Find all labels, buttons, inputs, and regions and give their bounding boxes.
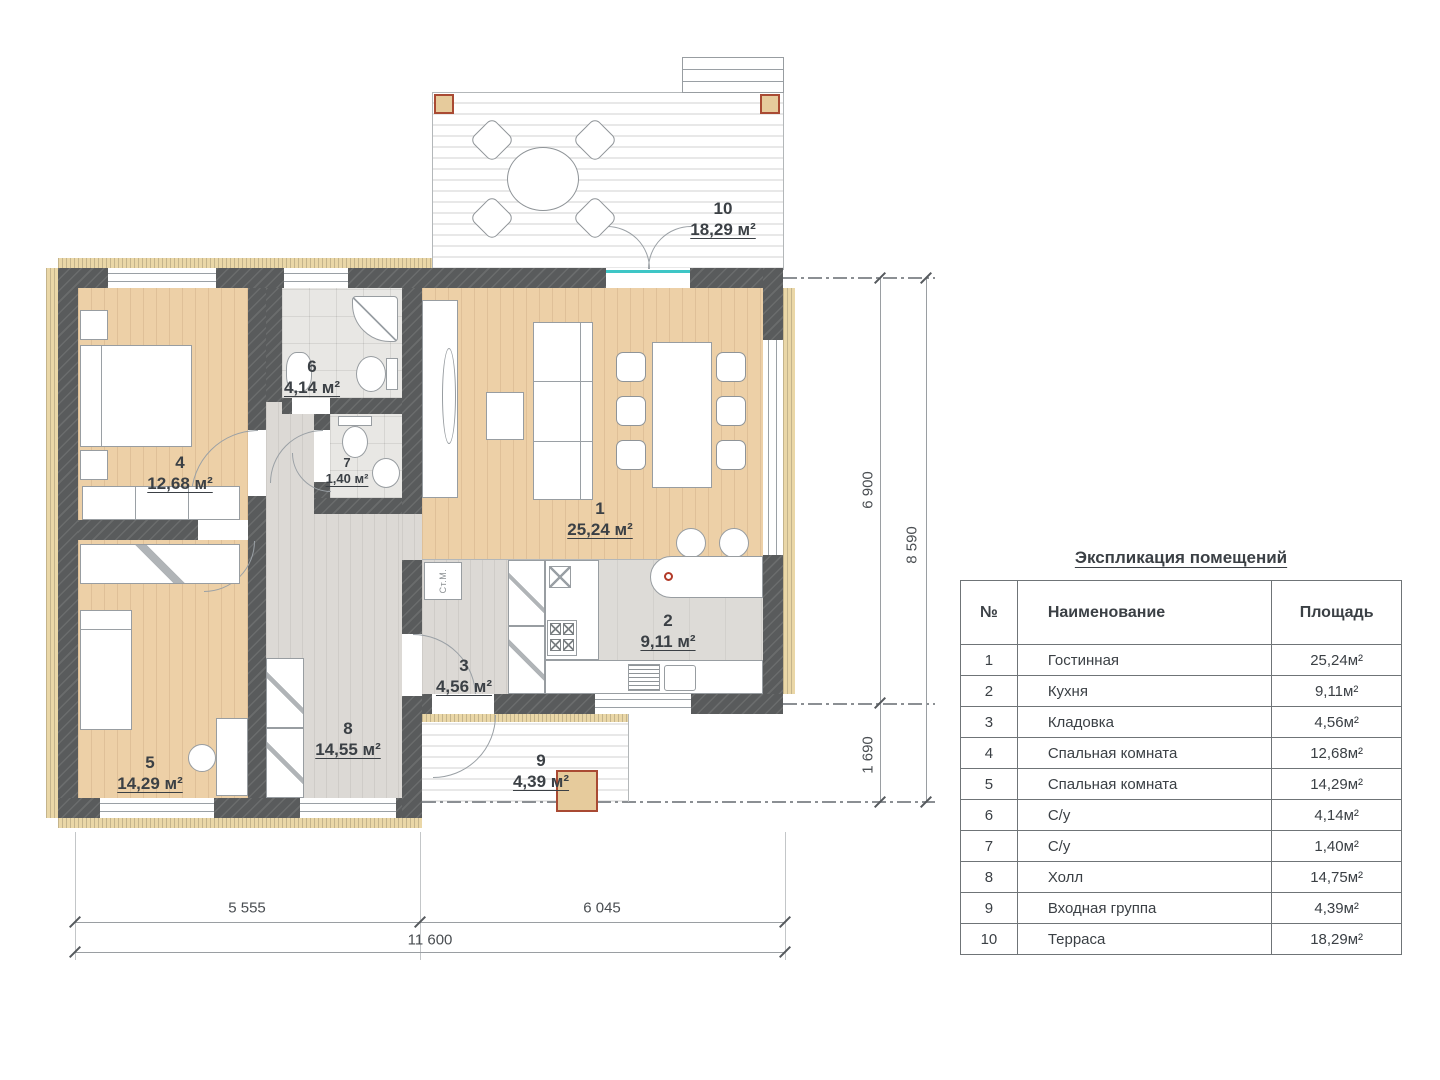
cell-name: Холл <box>1017 862 1271 893</box>
insulation-strip-right <box>783 288 795 694</box>
room-label-7: 7 1,40 м² <box>326 455 369 488</box>
wc-sink <box>372 458 400 488</box>
dishwasher <box>628 664 660 691</box>
room-area: 25,24 м² <box>567 519 633 540</box>
col-header-area: Площадь <box>1272 581 1402 645</box>
nightstand <box>80 450 108 480</box>
toilet-bowl <box>342 426 368 458</box>
room-label-9: 9 4,39 м² <box>513 750 569 793</box>
burner <box>550 623 561 635</box>
door-opening-bathroom <box>292 398 330 414</box>
insulation-strip-left <box>46 268 58 818</box>
cell-area: 25,24м² <box>1272 645 1402 676</box>
hall-wardrobe <box>266 728 304 798</box>
cell-num: 3 <box>961 707 1018 738</box>
insulation-strip-bottom <box>58 818 422 828</box>
terrace-step <box>682 57 784 93</box>
dining-chair <box>716 352 746 382</box>
stove <box>547 620 577 656</box>
toilet-tank <box>338 416 372 426</box>
single-bed <box>80 610 132 730</box>
window-bedroom5 <box>100 798 214 818</box>
room-number: 7 <box>326 455 369 471</box>
dining-chair <box>616 396 646 426</box>
room-number: 8 <box>315 718 381 739</box>
room-label-2: 2 9,11 м² <box>640 610 695 653</box>
cell-name: Спальная комната <box>1017 738 1271 769</box>
storage-closet <box>508 626 545 694</box>
window-hall <box>300 798 396 818</box>
dining-chair <box>616 352 646 382</box>
room-label-3: 3 4,56 м² <box>436 655 492 698</box>
dim-line-right-inner <box>880 278 881 802</box>
col-header-num: № <box>961 581 1018 645</box>
burner <box>563 639 574 651</box>
cell-num: 7 <box>961 831 1018 862</box>
room-number: 3 <box>436 655 492 676</box>
bar-stool <box>719 528 749 558</box>
schedule-row: 10 Терраса 18,29м² <box>961 924 1402 955</box>
porch-edge-line <box>628 714 629 802</box>
wall-left <box>58 268 78 818</box>
room-label-5: 5 14,29 м² <box>117 752 183 795</box>
dim-label-right-total: 8 590 <box>904 526 921 564</box>
room-area: 4,56 м² <box>436 676 492 697</box>
cell-name: С/у <box>1017 800 1271 831</box>
sofa <box>533 322 593 500</box>
wall-center-upper <box>402 288 422 514</box>
schedule-row: 2 Кухня 9,11м² <box>961 676 1402 707</box>
col-header-name: Наименование <box>1017 581 1271 645</box>
cell-area: 4,39м² <box>1272 893 1402 924</box>
nightstand <box>80 310 108 340</box>
schedule-header-row: № Наименование Площадь <box>961 581 1402 645</box>
dim-label-right-lower: 1 690 <box>860 736 877 774</box>
room-area: 18,29 м² <box>690 219 756 240</box>
room-label-6: 6 4,14 м² <box>284 356 340 399</box>
cell-name: Гостинная <box>1017 645 1271 676</box>
storage-closet <box>508 560 545 626</box>
window-kitchen <box>595 694 691 714</box>
burner <box>550 639 561 651</box>
room-label-8: 8 14,55 м² <box>315 718 381 761</box>
cell-num: 10 <box>961 924 1018 955</box>
schedule-table: № Наименование Площадь 1 Гостинная 25,24… <box>960 580 1402 955</box>
schedule-row: 5 Спальная комната 14,29м² <box>961 769 1402 800</box>
dining-chair <box>716 396 746 426</box>
schedule-row: 1 Гостинная 25,24м² <box>961 645 1402 676</box>
terrace-table <box>507 147 579 211</box>
dim-label-right-upper: 6 900 <box>860 471 877 509</box>
cell-area: 12,68м² <box>1272 738 1402 769</box>
wardrobe <box>80 544 240 584</box>
schedule-row: 8 Холл 14,75м² <box>961 862 1402 893</box>
dim-line-bottom-split <box>75 922 785 923</box>
desk-chair <box>188 744 216 772</box>
room-label-1: 1 25,24 м² <box>567 498 633 541</box>
cell-area: 14,75м² <box>1272 862 1402 893</box>
schedule-row: 6 С/у 4,14м² <box>961 800 1402 831</box>
extension-line <box>785 832 786 960</box>
dining-chair <box>716 440 746 470</box>
cell-num: 2 <box>961 676 1018 707</box>
room-number: 2 <box>640 610 695 631</box>
cell-name: Кухня <box>1017 676 1271 707</box>
washing-machine: Ст.М. <box>424 562 462 600</box>
toilet-bowl <box>356 356 386 392</box>
schedule-row: 4 Спальная комната 12,68м² <box>961 738 1402 769</box>
room-area: 12,68 м² <box>147 473 213 494</box>
cell-area: 18,29м² <box>1272 924 1402 955</box>
dining-table <box>652 342 712 488</box>
schedule-row: 7 С/у 1,40м² <box>961 831 1402 862</box>
cell-area: 9,11м² <box>1272 676 1402 707</box>
insulation-strip-top <box>58 258 432 268</box>
burner <box>563 623 574 635</box>
under-counter-sink <box>664 665 696 691</box>
wall-bath-left <box>266 288 282 402</box>
dim-label-bottom-total: 11 600 <box>408 932 453 949</box>
bar-stool <box>676 528 706 558</box>
terrace-threshold <box>606 270 690 273</box>
window-bathroom <box>284 268 348 288</box>
room-label-4: 4 12,68 м² <box>147 452 213 495</box>
room-number: 9 <box>513 750 569 771</box>
centerline-top <box>783 277 935 279</box>
terrace-post <box>760 94 780 114</box>
terrace-post <box>434 94 454 114</box>
kitchen-sink <box>549 566 571 588</box>
room-number: 4 <box>147 452 213 473</box>
room-number: 10 <box>690 198 756 219</box>
double-bed <box>80 345 192 447</box>
room-number: 6 <box>284 356 340 377</box>
room-area: 14,29 м² <box>117 773 183 794</box>
door-opening-bedroom5 <box>198 520 248 540</box>
cell-name: Входная группа <box>1017 893 1271 924</box>
room-number: 5 <box>117 752 183 773</box>
dim-line-right-outer <box>926 278 927 802</box>
schedule-row: 9 Входная группа 4,39м² <box>961 893 1402 924</box>
dining-chair <box>616 440 646 470</box>
dim-label-bottom-left: 5 555 <box>228 900 266 917</box>
room-area: 14,55 м² <box>315 739 381 760</box>
schedule-title: Экспликация помещений <box>960 548 1402 568</box>
cell-num: 4 <box>961 738 1018 769</box>
cell-name: Терраса <box>1017 924 1271 955</box>
faucet-point <box>664 572 673 581</box>
dim-label-bottom-right: 6 045 <box>583 900 621 917</box>
cell-area: 4,14м² <box>1272 800 1402 831</box>
extension-line <box>75 832 76 960</box>
window-bedroom4 <box>108 268 216 288</box>
cell-num: 9 <box>961 893 1018 924</box>
centerline-bottom <box>422 801 935 803</box>
schedule-row: 3 Кладовка 4,56м² <box>961 707 1402 738</box>
tv <box>442 348 456 444</box>
cell-num: 1 <box>961 645 1018 676</box>
dim-line-bottom-total <box>75 952 785 953</box>
cell-area: 14,29м² <box>1272 769 1402 800</box>
room-area: 4,39 м² <box>513 771 569 792</box>
room-area: 9,11 м² <box>640 631 695 652</box>
cell-area: 4,56м² <box>1272 707 1402 738</box>
cell-name: Спальная комната <box>1017 769 1271 800</box>
window-living <box>763 340 783 555</box>
room-area: 1,40 м² <box>326 471 369 487</box>
cell-area: 1,40м² <box>1272 831 1402 862</box>
hall-opening-floor <box>402 514 422 560</box>
centerline-mid <box>783 703 935 705</box>
washing-machine-label: Ст.М. <box>425 563 461 599</box>
cell-num: 5 <box>961 769 1018 800</box>
coffee-table <box>486 392 524 440</box>
hall-wardrobe <box>266 658 304 728</box>
cell-name: С/у <box>1017 831 1271 862</box>
toilet-tank <box>386 358 398 390</box>
desk <box>216 718 248 796</box>
room-number: 1 <box>567 498 633 519</box>
cell-num: 8 <box>961 862 1018 893</box>
floor-plan-sheet: Ст.М. 6 900 1 690 8 590 5 555 6 045 11 6… <box>0 0 1440 1080</box>
room-label-10: 10 18,29 м² <box>690 198 756 241</box>
cell-name: Кладовка <box>1017 707 1271 738</box>
room-area: 4,14 м² <box>284 377 340 398</box>
cell-num: 6 <box>961 800 1018 831</box>
